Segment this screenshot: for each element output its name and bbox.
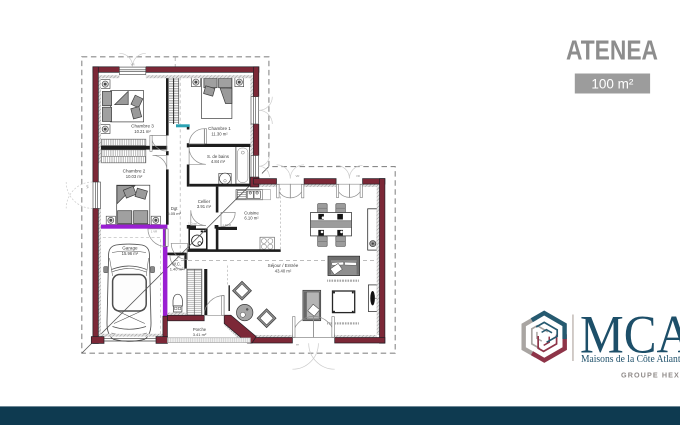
svg-text:1 Coax: 1 Coax	[188, 221, 197, 225]
svg-text:3.91 m²: 3.91 m²	[197, 204, 212, 209]
svg-text:GROUPE HEXAOM: GROUPE HEXAOM	[621, 371, 680, 380]
svg-text:Chambre 1: Chambre 1	[208, 126, 231, 131]
svg-text:VR: VR	[296, 174, 300, 178]
svg-text:Chambre 2: Chambre 2	[123, 169, 146, 174]
svg-text:4.84 m²: 4.84 m²	[211, 159, 226, 164]
svg-text:43.40 m²: 43.40 m²	[275, 269, 292, 274]
svg-text:10.21 m²: 10.21 m²	[134, 129, 151, 134]
svg-text:1 RJ45: 1 RJ45	[222, 223, 231, 227]
svg-text:ee: ee	[296, 342, 300, 346]
svg-text:VR: VR	[131, 63, 135, 67]
svg-text:Chambre 3: Chambre 3	[131, 124, 154, 129]
svg-text:6.05 m²: 6.05 m²	[167, 211, 181, 216]
svg-text:100 m²: 100 m²	[591, 77, 634, 92]
svg-text:11.30 m²: 11.30 m²	[211, 132, 228, 137]
svg-text:Maisons de la Côte Atlantique: Maisons de la Côte Atlantique	[581, 354, 680, 365]
svg-text:Garage: Garage	[122, 246, 138, 251]
svg-text:15.96 m²: 15.96 m²	[122, 251, 139, 256]
svg-text:VR: VR	[356, 174, 360, 178]
svg-text:6.10 m²: 6.10 m²	[244, 216, 259, 221]
svg-text:10.03 m²: 10.03 m²	[126, 174, 143, 179]
svg-text:VR: VR	[86, 185, 90, 189]
svg-text:1.40 m²: 1.40 m²	[170, 267, 184, 272]
svg-text:Séjour / Entrée: Séjour / Entrée	[268, 263, 299, 268]
svg-text:3.41 m²: 3.41 m²	[193, 332, 207, 337]
svg-text:ATENEA: ATENEA	[566, 35, 658, 66]
svg-text:1 VR: 1 VR	[151, 230, 157, 234]
